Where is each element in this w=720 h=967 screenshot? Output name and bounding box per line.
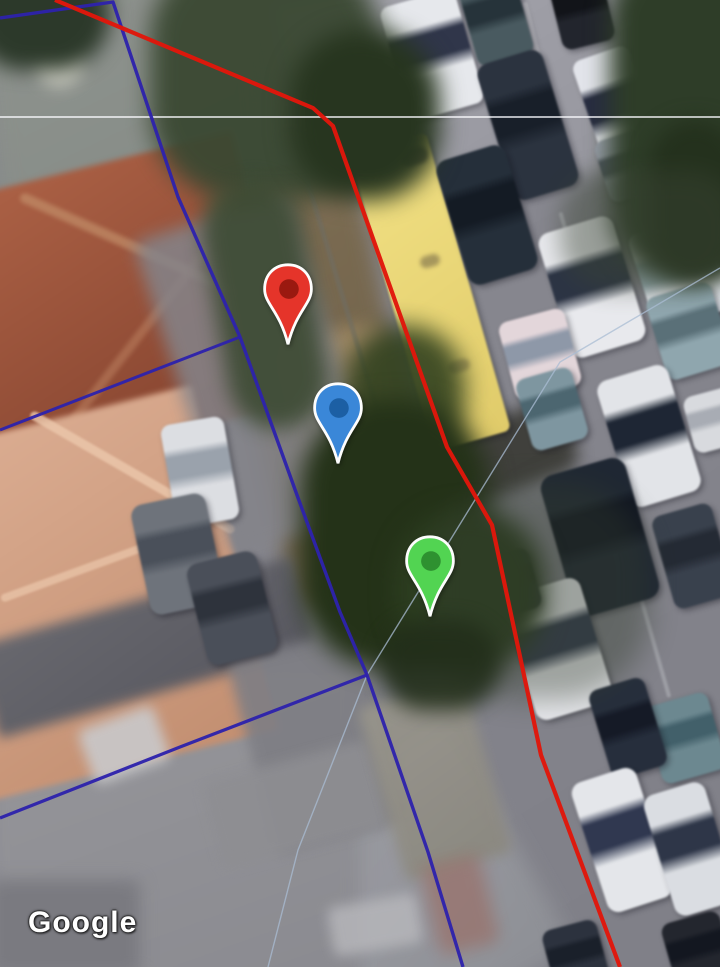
map-canvas[interactable]: Google [0,0,720,967]
green-pin-body[interactable] [407,537,454,616]
map-markers [0,0,720,967]
red-pin-dot [279,279,299,299]
red-pin-body[interactable] [265,265,312,344]
marker-red-pin[interactable] [259,262,317,353]
blue-pin-dot [329,398,349,418]
google-watermark[interactable]: Google [28,906,137,940]
blue-pin-body[interactable] [315,384,362,463]
green-pin-dot [421,551,441,571]
marker-green-pin[interactable] [401,534,459,625]
marker-blue-pin[interactable] [309,381,367,472]
